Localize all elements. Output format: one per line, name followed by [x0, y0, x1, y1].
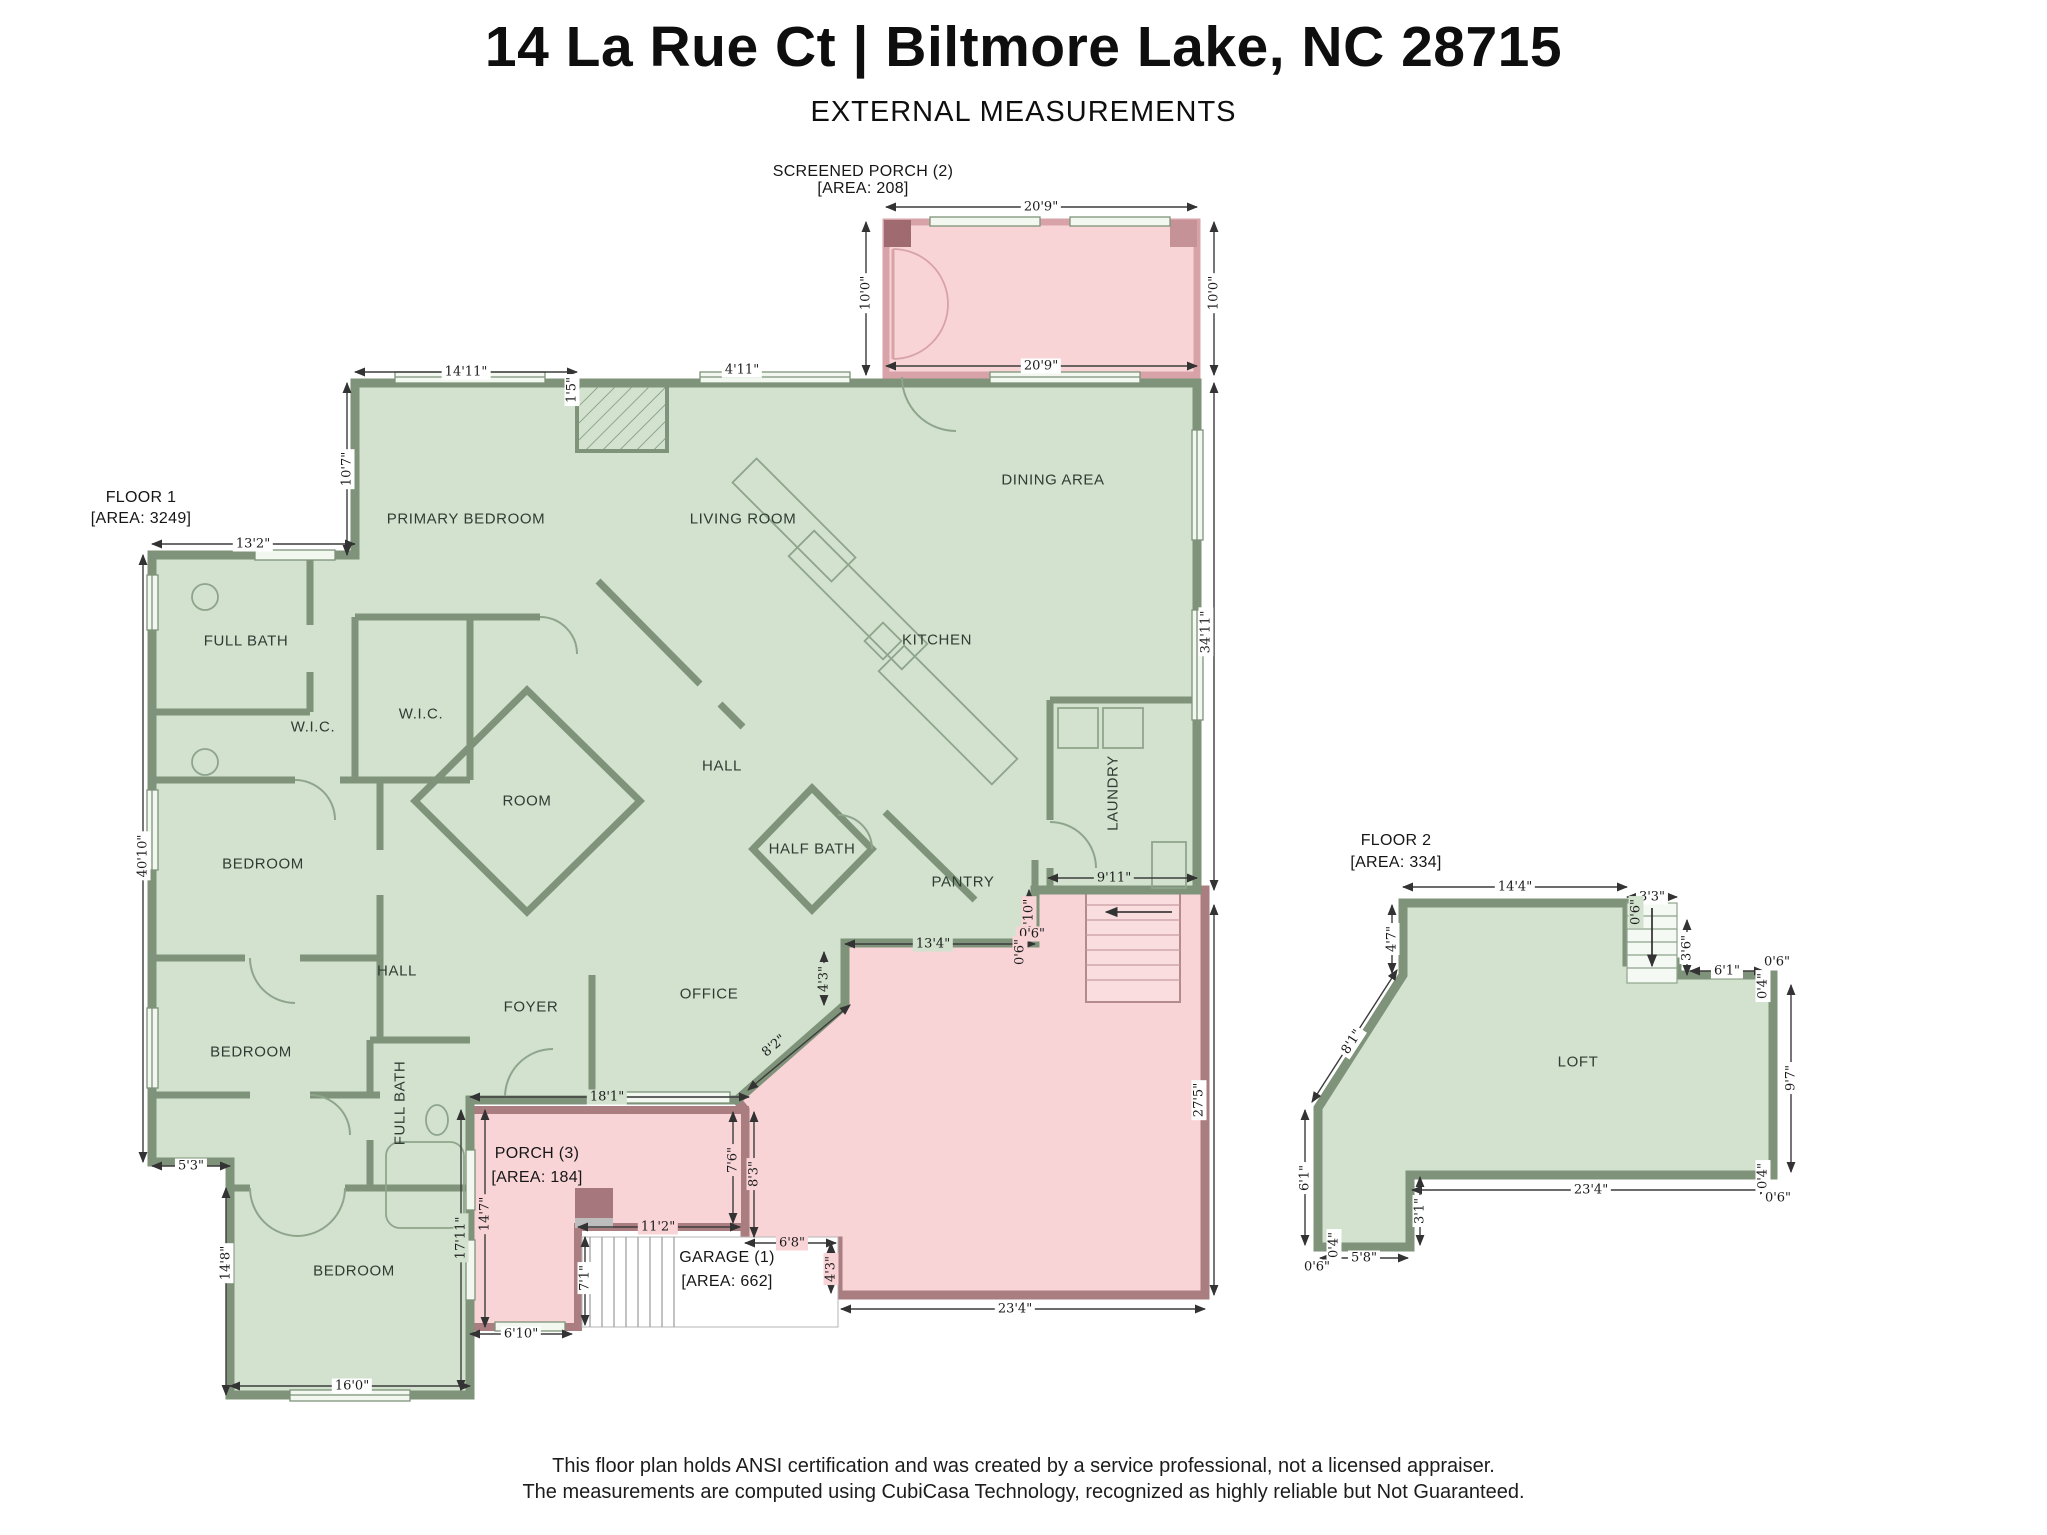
dimension-label: 0'6"	[1762, 1191, 1794, 1206]
area-heading: PORCH (3)	[495, 1145, 579, 1163]
room-label: OFFICE	[680, 986, 739, 1003]
area-heading: [AREA: 208]	[817, 180, 908, 198]
dimension-label: 4'3"	[824, 1253, 839, 1285]
room-label: ROOM	[502, 793, 551, 810]
dimension-label: 8'3"	[747, 1158, 762, 1190]
room-label: FULL BATH	[204, 633, 289, 650]
dimension-label: 9'7"	[1784, 1062, 1799, 1094]
dimension-label: 1'5"	[565, 374, 580, 406]
room-label: KITCHEN	[902, 632, 972, 649]
room-label: BEDROOM	[210, 1044, 292, 1061]
room-label: PRIMARY BEDROOM	[387, 511, 545, 528]
dimension-label: 3'1"	[1413, 1195, 1428, 1227]
dimension-label: 10'0"	[1207, 273, 1222, 313]
dimension-label: 20'9"	[1021, 359, 1061, 374]
dimension-label: 23'4"	[995, 1302, 1035, 1317]
room-label: FOYER	[504, 999, 559, 1016]
room-label: BEDROOM	[313, 1263, 395, 1280]
dimension-label: 10'7"	[340, 449, 355, 489]
floorplan-page: 14 La Rue Ct | Biltmore Lake, NC 28715 E…	[0, 0, 2047, 1535]
dimension-label: 0'6"	[1013, 936, 1028, 968]
dimension-label: 0'4"	[1327, 1229, 1342, 1261]
dimension-label: 4'3"	[817, 963, 832, 995]
area-heading: [AREA: 662]	[681, 1273, 772, 1291]
dimension-label: 7'6"	[726, 1144, 741, 1176]
dimension-label: 5'8"	[1348, 1251, 1380, 1266]
dimension-label: 10'0"	[859, 273, 874, 313]
dimension-label: 6'10"	[501, 1327, 541, 1342]
dimension-label: 7'1"	[578, 1262, 593, 1294]
dimension-label: 4'7"	[1385, 923, 1400, 955]
dimension-label: 0'4"	[1756, 970, 1771, 1002]
dimension-label: 14'7"	[478, 1194, 493, 1234]
area-heading: SCREENED PORCH (2)	[773, 163, 954, 181]
dimension-label: 14'11"	[442, 365, 491, 380]
dimension-label: 13'4"	[913, 937, 953, 952]
dimension-label: 13'2"	[233, 537, 273, 552]
room-label: FULL BATH	[392, 1061, 409, 1146]
dimension-label: 17'11"	[454, 1214, 469, 1263]
room-label: LIVING ROOM	[690, 511, 797, 528]
dimension-label: 18'1"	[587, 1090, 627, 1105]
dimension-label: 27'5"	[1192, 1080, 1207, 1120]
dimension-label: 9'11"	[1094, 871, 1134, 886]
footer-disclaimer-1: This floor plan holds ANSI certification…	[0, 1455, 2047, 1478]
dimension-label: 11'2"	[638, 1220, 678, 1235]
screened-porch-area	[884, 220, 1197, 375]
room-label: HALF BATH	[769, 841, 856, 858]
room-label: HALL	[377, 963, 417, 980]
room-label: PANTRY	[931, 874, 994, 891]
dimension-label: 40'10"	[136, 832, 151, 881]
area-heading: [AREA: 3249]	[91, 510, 192, 528]
dimension-label: 0'6"	[1301, 1260, 1333, 1275]
area-heading: FLOOR 1	[106, 489, 177, 507]
area-heading: FLOOR 2	[1361, 832, 1432, 850]
stair-hatch	[577, 385, 667, 451]
dimension-label: 14'8"	[219, 1243, 234, 1283]
dimension-label: 4'11"	[722, 363, 762, 378]
dimension-label: 0'6"	[1761, 955, 1793, 970]
room-label: BEDROOM	[222, 856, 304, 873]
area-heading: GARAGE (1)	[679, 1249, 774, 1267]
dimension-label: 6'8"	[776, 1236, 808, 1251]
room-label: LOFT	[1558, 1054, 1599, 1071]
dimension-label: 6'1"	[1298, 1162, 1313, 1194]
footer-disclaimer-2: The measurements are computed using Cubi…	[0, 1481, 2047, 1504]
dimension-label: 34'11"	[1199, 608, 1214, 657]
room-label: W.I.C.	[399, 706, 443, 723]
dimension-label: 16'0"	[332, 1379, 372, 1394]
area-heading: [AREA: 334]	[1350, 854, 1441, 872]
dimension-label: 6'1"	[1711, 964, 1743, 979]
dimension-label: 5'3"	[175, 1159, 207, 1174]
dimension-label: 3'6"	[1680, 932, 1695, 964]
room-label: W.I.C.	[291, 719, 335, 736]
dimension-label: 23'4"	[1571, 1183, 1611, 1198]
area-heading: [AREA: 184]	[491, 1169, 582, 1187]
dimension-label: 0'4"	[1756, 1160, 1771, 1192]
dimension-label: 14'4"	[1495, 880, 1535, 895]
room-label: DINING AREA	[1001, 472, 1104, 489]
dimension-label: 20'9"	[1021, 200, 1061, 215]
room-label: LAUNDRY	[1105, 755, 1122, 831]
dimension-label: 0'6"	[1629, 896, 1644, 928]
room-label: HALL	[702, 758, 742, 775]
